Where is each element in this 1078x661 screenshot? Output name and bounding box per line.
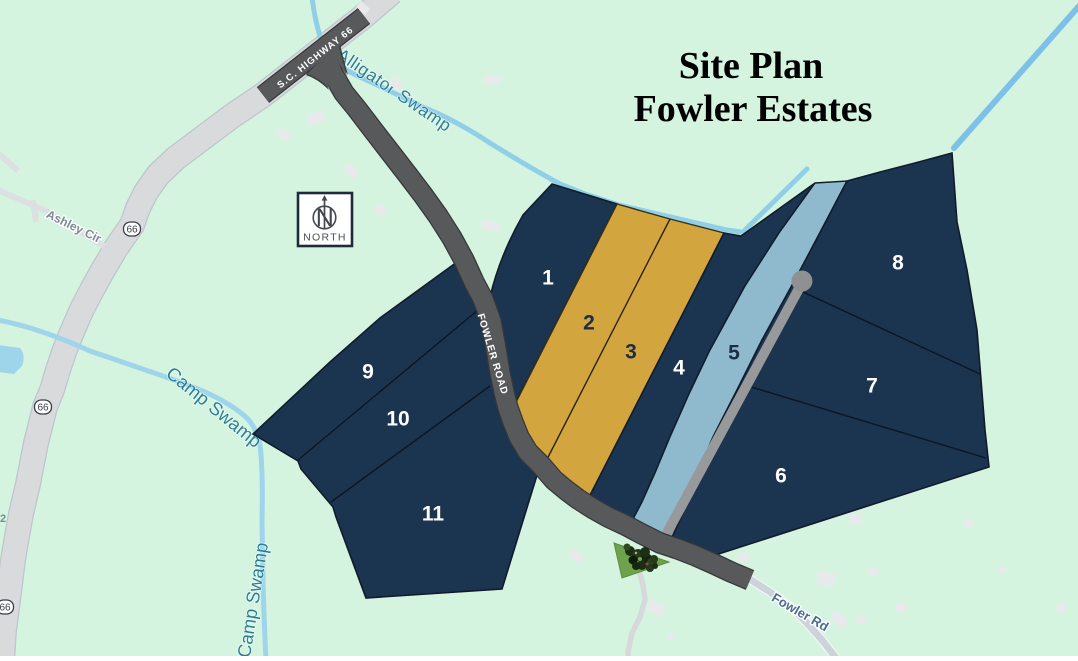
svg-text:10: 10: [386, 408, 409, 431]
svg-text:66: 66: [37, 403, 49, 414]
svg-text:N: N: [316, 204, 334, 232]
svg-text:5: 5: [728, 342, 740, 365]
svg-text:7: 7: [866, 375, 878, 398]
svg-text:NORTH: NORTH: [303, 232, 347, 244]
svg-text:Site Plan: Site Plan: [679, 45, 824, 87]
svg-text:8: 8: [892, 252, 904, 275]
svg-text:2: 2: [0, 513, 6, 525]
svg-text:9: 9: [362, 361, 374, 384]
svg-text:3: 3: [625, 341, 637, 364]
svg-text:Fowler Estates: Fowler Estates: [634, 88, 873, 130]
svg-text:1: 1: [542, 267, 554, 290]
svg-text:4: 4: [673, 357, 685, 380]
svg-text:2: 2: [583, 312, 595, 335]
svg-text:66: 66: [0, 603, 11, 614]
svg-text:6: 6: [775, 465, 787, 488]
svg-text:66: 66: [126, 225, 138, 236]
svg-text:11: 11: [422, 503, 445, 526]
